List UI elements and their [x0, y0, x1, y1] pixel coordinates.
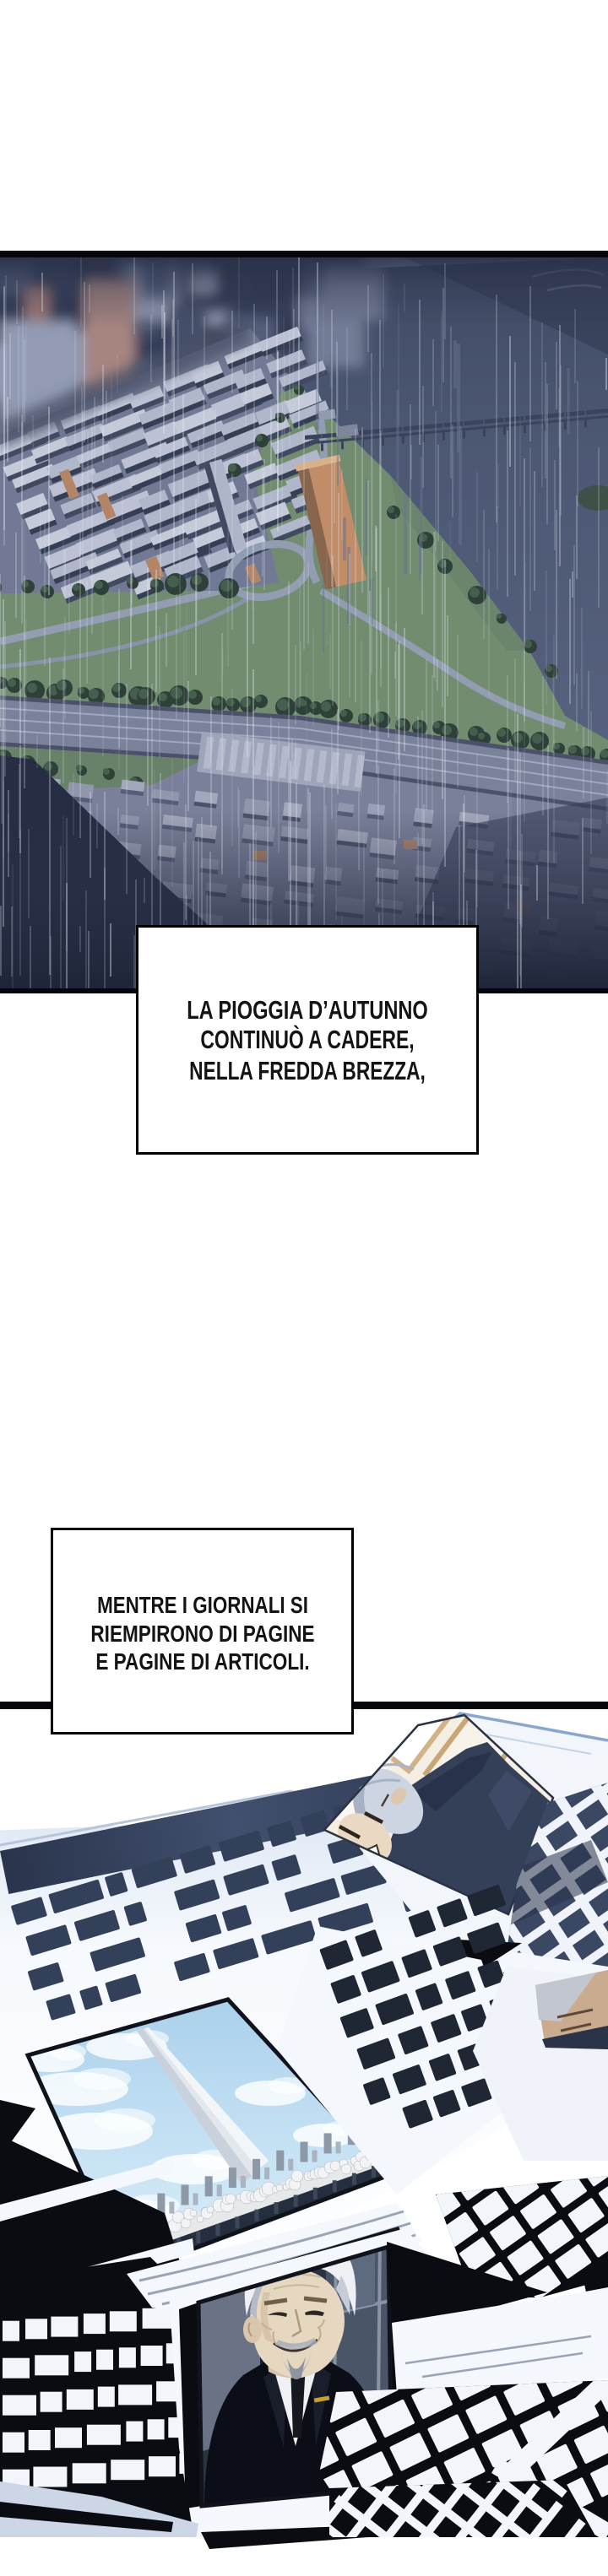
svg-text:MENTRE I GIORNALI SI: MENTRE I GIORNALI SI	[97, 1594, 308, 1619]
svg-text:NELLA FREDDA BREZZA,: NELLA FREDDA BREZZA,	[189, 1057, 426, 1085]
svg-text:E PAGINE DI ARTICOLI.: E PAGINE DI ARTICOLI.	[95, 1650, 309, 1675]
svg-text:CONTINUÒ A CADERE,: CONTINUÒ A CADERE,	[200, 1026, 414, 1054]
svg-text:LA PIOGGIA D’AUTUNNO: LA PIOGGIA D’AUTUNNO	[187, 996, 428, 1025]
svg-text:RIEMPIRONO DI PAGINE: RIEMPIRONO DI PAGINE	[90, 1622, 314, 1648]
